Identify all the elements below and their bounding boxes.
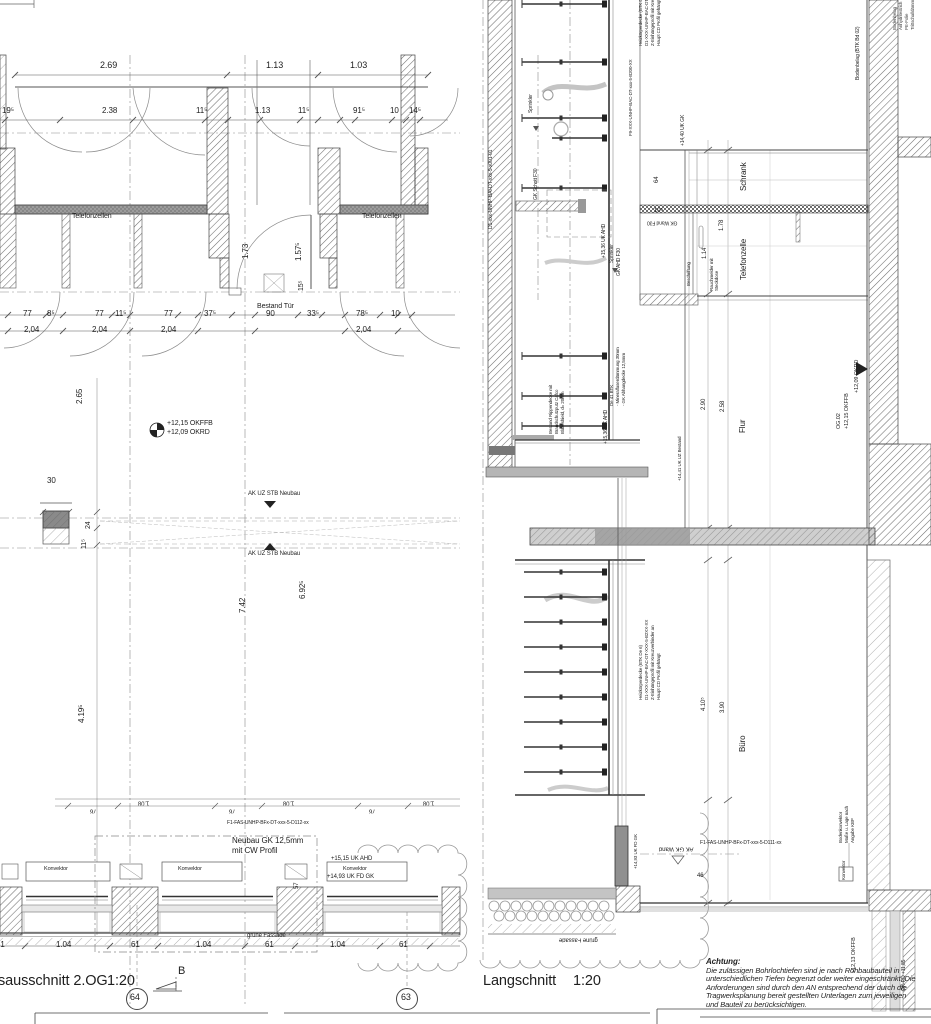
gk-schott-label: GK Schott F30 [534,169,539,201]
plan-window-band [0,862,460,945]
section-facade-detail [488,478,853,934]
view-scale: 1:20 [107,974,135,990]
dim-label: 76 [90,807,96,813]
dim-label: 1.04 [330,941,345,950]
section-rooms [640,0,868,903]
gk-note: mit CW Profil [232,847,277,856]
dim-label: 1.04 [56,941,71,950]
dim-label: 1.13 [266,61,283,71]
dim-label: 1.13 [255,107,270,116]
storey-label: OG.02 [837,413,843,429]
sprinkler-label: Sprinkler [529,94,534,113]
dim-label: 2.58 [720,401,726,412]
beam-axis-note: AK UZ STB Neubau [248,491,300,497]
dim-label: 11⁵ [115,310,126,319]
section-grid-lines [483,0,770,960]
room-label-telefonzellen: Telefonzellen [362,213,402,221]
dim-label: 61 [0,941,5,950]
abhang-note: - GK Abhangdecke 12,5mm [622,353,627,406]
dim-label: 78⁵ [356,310,368,319]
konvektor-label: Konvektor [44,867,68,873]
dim-label: 10⁵ [654,208,663,214]
level-label-okffb: +12,15 OKFFB [167,420,213,428]
dim-label: 91⁵ [353,107,365,116]
dim-label: 1.08 [423,799,434,805]
room-label-buero: Büro [739,736,748,753]
section-letter: B [178,966,185,978]
bodenbelag-label: Bodenbelag (BTK Bd 02) [856,27,861,80]
drawing-linework [0,0,931,1024]
dim-label: 61 [399,941,408,950]
dim-label: 77 [95,310,104,319]
dim-label: 77 [23,310,32,319]
level-label-okrd: +12,09 OKRD [855,360,861,393]
dim-label: 2.65 [76,389,85,404]
konvektor-label: Konvektor [343,867,367,873]
level-label-uk-ahd: +15,15 UK AHD [331,856,372,862]
dim-label: 15⁵ [298,281,306,291]
level-label-uk-uz: +14,41 UK UZ Bestand [678,437,683,481]
bodenkonvektor-note: Angabe KBP [851,818,856,843]
section-buero-ceiling [515,560,645,795]
dim-label: 1.57⁵ [295,243,304,261]
dim-label: 33⁵ [307,310,319,319]
plan-dimension-lines [0,72,460,949]
dim-label: 2.69 [100,61,117,71]
dim-label: 61 [265,941,274,950]
room-label-schrank: Schrank [740,162,749,191]
architectural-drawing-sheet: 2.69 1.13 1.03 19⁵ 2.38 11⁵ 1.13 11⁵ 91⁵… [0,0,931,1024]
achtung-note: Achtung: Die zulässigen Bohrlochtiefen s… [706,958,916,1010]
rauchmelder-note: Steckdose [715,271,720,291]
plan-walls [0,0,428,295]
level-label-uk-gk: +14,40 UK GK [681,115,686,146]
dim-label: 1.14 [702,248,708,259]
dim-label: 6.92⁵ [299,581,308,599]
dim-label: 2,04 [356,326,371,335]
sprinkler-label: Sprinkler [610,244,615,263]
dim-label: 1.08 [138,799,149,805]
dim-label: 2.38 [102,107,117,116]
facade-code-label: F1-FAS-UNHP-BFx-DT-xxx-5-D111-xx [700,841,781,846]
room-label-telefonzellen: Telefonzellen [72,213,112,221]
dim-label: 46 [697,873,703,879]
beschriftung-label: Beschriftung [687,262,692,286]
dim-label: 10 [391,310,400,319]
sheet-border-lines [35,1009,931,1024]
dim-label: 2,04 [24,326,39,335]
dim-label: 1.04 [196,941,211,950]
dim-label: 19⁵ [2,107,14,116]
wall-code-label: D1-xxx-UNHP-BAI-DT-xxx-5-x001-01 [489,150,494,229]
dim-label: 2,04 [92,326,107,335]
facade-code-label: F1-FAS-UNHP-BFx-DT-xxx-5-D112-xx [227,821,309,826]
ceiling-note: Haupt CD Profil gehängt [657,654,662,700]
dim-label: 76 [229,807,235,813]
level-label-okrd: +12,09 OKRD [167,429,210,437]
dim-label: 57 [294,883,300,889]
level-label-uk-ahd: +15,36 UK AHD [604,410,609,444]
gk-wand-label: GK Wand F30 [647,219,677,224]
level-label-uk-fd-gk: +14,93 UK FD GK [634,834,639,869]
dim-label: 1.73 [242,244,251,259]
dim-label: 4.19⁵ [78,705,87,723]
view-title-plan: sausschnitt 2.OG [0,974,108,990]
dim-label: 11⁵ [196,107,207,116]
level-label-uk-ahd: +15,36 UK AHD [602,224,607,258]
beam-axis-note: AK UZ STB Neubau [248,551,300,557]
dim-label: 61 [131,941,140,950]
gk-ahd-label: GK AHD F30 [617,248,622,276]
room-label-flur: Flur [739,420,748,433]
level-marker-symbol [150,423,164,437]
dim-label: 1.08 [283,799,294,805]
gk-note: Neubau GK 12,5mm [232,837,303,846]
dim-label: 77 [164,310,173,319]
gruene-fassade-label: grüne Fassade [559,936,598,942]
door-note: Bestand Tür [257,303,294,311]
dim-label: 10 [390,107,399,116]
view-scale: 1:20 [573,974,601,990]
dim-label: 2,04 [161,326,176,335]
dim-label: 1.78 [719,220,725,231]
bestand-note: Blazeshield, d= 20mm [561,392,566,434]
dim-label: 11⁵ [298,107,309,116]
ceiling-note: Haupt CD Profil gehängt [657,0,662,46]
floor-buildup-note: Trittschalldämmung [911,0,916,30]
plan-title-symbols [127,977,418,1010]
view-title-section: Langschnitt [483,974,556,990]
ak-gk-wand-label: AK GK Wand [659,845,693,851]
level-label-uk-fd-gk: +14,93 UK FD GK [327,874,374,880]
konvektor-label: Konvektor [178,867,202,873]
dim-label: 37⁵ [204,310,216,319]
dim-label: 3.90 [720,702,726,713]
grid-bubble: 64 [130,993,140,1003]
room-label-telefonzelle: Telefonzelle [740,239,749,280]
grid-bubble: 63 [401,993,411,1003]
gruene-fassade-label: grüne Fassade [247,933,286,939]
dim-label: 24 [85,521,93,529]
ceiling-code-label: F9-XXX-UNHP-BAC-DT-xxx-5-B200-XX [629,59,634,136]
plan-beam-axis [100,501,460,550]
achtung-line: und Bauteil zu berücksichtigen. [706,1001,916,1010]
dim-label: 1.03 [350,61,367,71]
dim-label: 64 [654,177,660,183]
level-label-okffb: +12,15 OKFFB [845,393,851,429]
dim-label: 4.10⁵ [701,697,707,711]
dim-label: 7.42 [239,598,248,613]
dim-label: 8⁵ [47,310,55,319]
dim-label: 30 [47,477,56,486]
dim-label: 14⁵ [409,107,421,116]
dim-label: 76 [369,807,375,813]
konvektor-label: Konvektor [842,861,847,880]
dim-label: 11⁵ [81,539,89,549]
dim-label: 2.90 [701,399,707,410]
dim-label: 90 [266,310,275,319]
plan-column-section [43,511,69,544]
